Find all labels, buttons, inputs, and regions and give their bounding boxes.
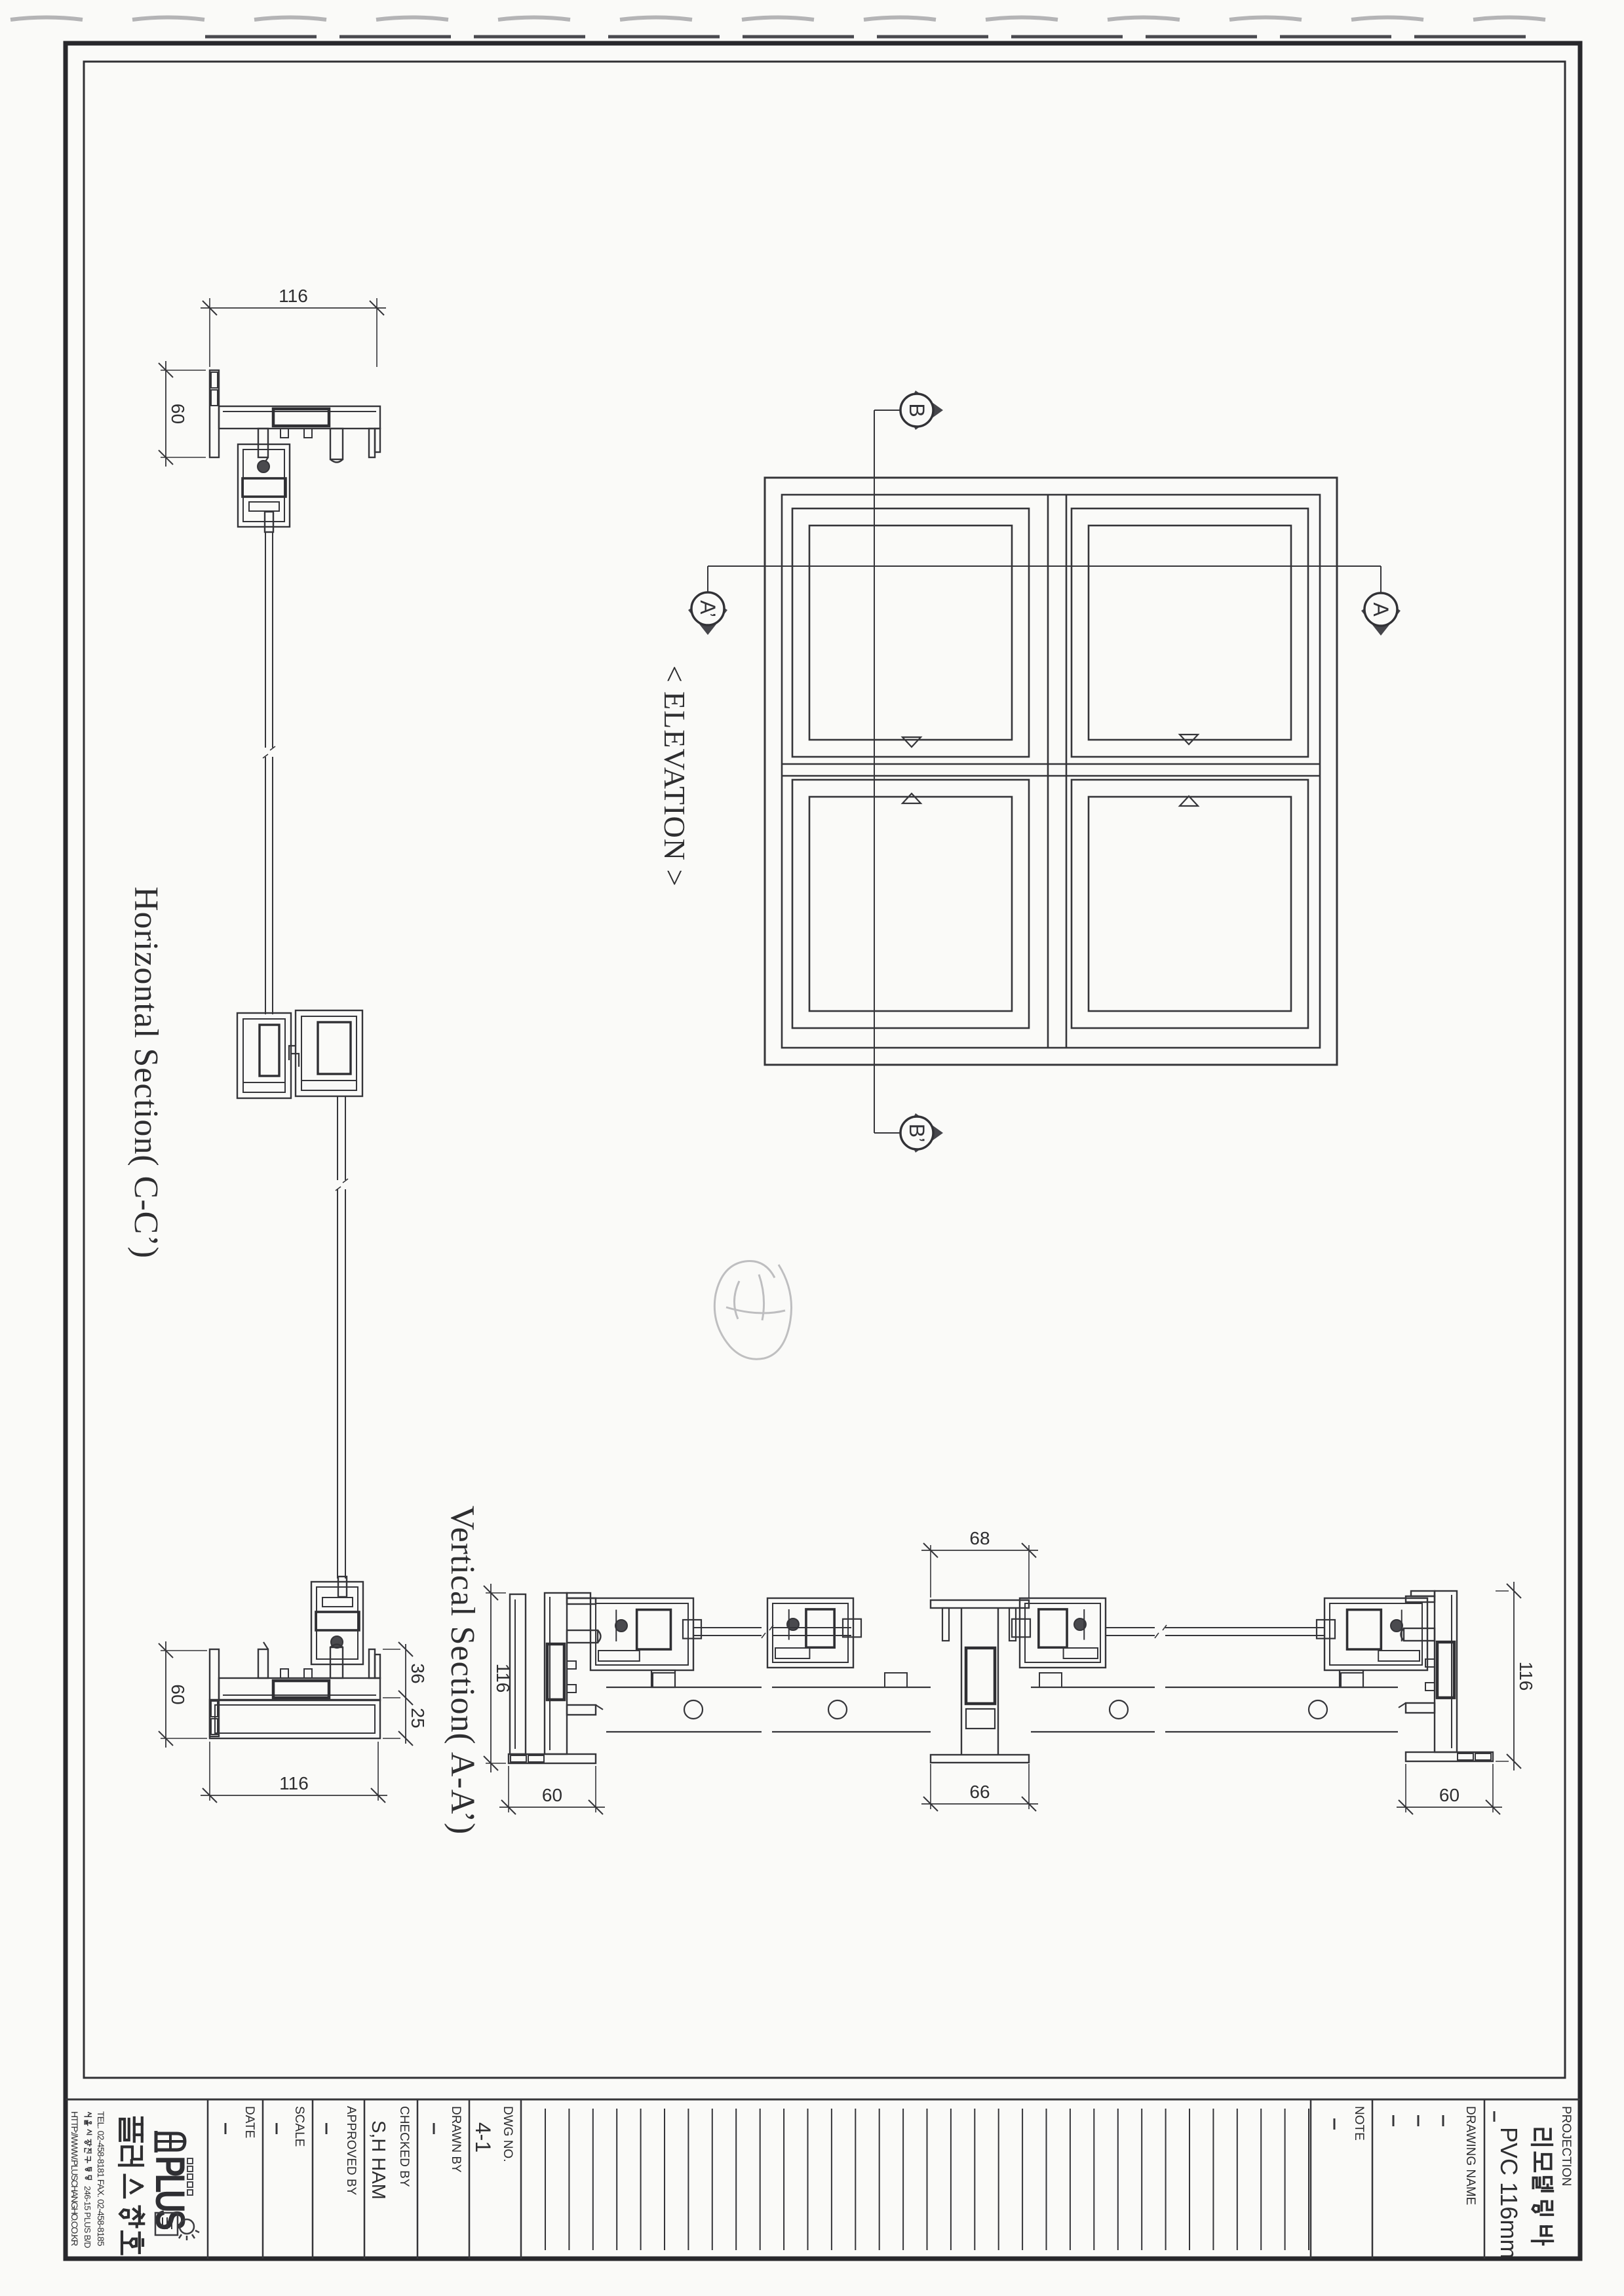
- svg-text:60: 60: [1439, 1785, 1460, 1805]
- svg-text:60: 60: [168, 404, 188, 424]
- svg-text:B: B: [905, 403, 929, 417]
- svg-text:PROJECTION: PROJECTION: [1559, 2106, 1573, 2186]
- svg-text:66: 66: [969, 1782, 990, 1802]
- svg-text:Vertical Section( A-A’): Vertical Section( A-A’): [444, 1506, 481, 1835]
- svg-text:25: 25: [408, 1708, 428, 1728]
- svg-text:36: 36: [408, 1663, 428, 1683]
- svg-text:< ELEVATION >: < ELEVATION >: [658, 666, 691, 887]
- svg-text:68: 68: [969, 1528, 990, 1548]
- svg-text:DWG NO.: DWG NO.: [501, 2106, 514, 2162]
- svg-text:DRAWING NAME: DRAWING NAME: [1463, 2106, 1477, 2205]
- svg-text:CHECKED BY: CHECKED BY: [397, 2106, 411, 2187]
- svg-text:DRAWN BY: DRAWN BY: [449, 2106, 463, 2173]
- svg-text:116: 116: [493, 1664, 513, 1693]
- svg-text:APPROVED BY: APPROVED BY: [344, 2106, 358, 2196]
- svg-text:246-15 PLUS B/D: 246-15 PLUS B/D: [83, 2186, 92, 2248]
- svg-text:B’: B’: [905, 1124, 929, 1142]
- svg-text:116: 116: [279, 286, 308, 306]
- svg-text:A: A: [1369, 602, 1393, 617]
- svg-text:4-1: 4-1: [471, 2122, 495, 2152]
- svg-text:60: 60: [542, 1785, 562, 1805]
- svg-text:TEL. 02-458-8181 FAX. 02-458: TEL. 02-458-8181 FAX. 02-458-8185: [96, 2111, 106, 2246]
- svg-text:60: 60: [168, 1684, 188, 1704]
- svg-text:Horizontal Section( C-C’): Horizontal Section( C-C’): [127, 887, 164, 1259]
- svg-text:A’: A’: [696, 600, 720, 617]
- svg-text:NOTE: NOTE: [1352, 2106, 1366, 2141]
- svg-text:S,H HAM: S,H HAM: [368, 2120, 389, 2200]
- svg-text:116: 116: [1516, 1662, 1536, 1691]
- svg-text:DATE: DATE: [242, 2106, 256, 2138]
- svg-text:PVC 116mm: PVC 116mm: [1496, 2127, 1522, 2259]
- svg-text:SCALE: SCALE: [292, 2106, 306, 2147]
- svg-text:HTTP://WWW.PLUSCHANGHO.CO.KR: HTTP://WWW.PLUSCHANGHO.CO.KR: [69, 2111, 80, 2246]
- svg-text:116: 116: [279, 1773, 309, 1793]
